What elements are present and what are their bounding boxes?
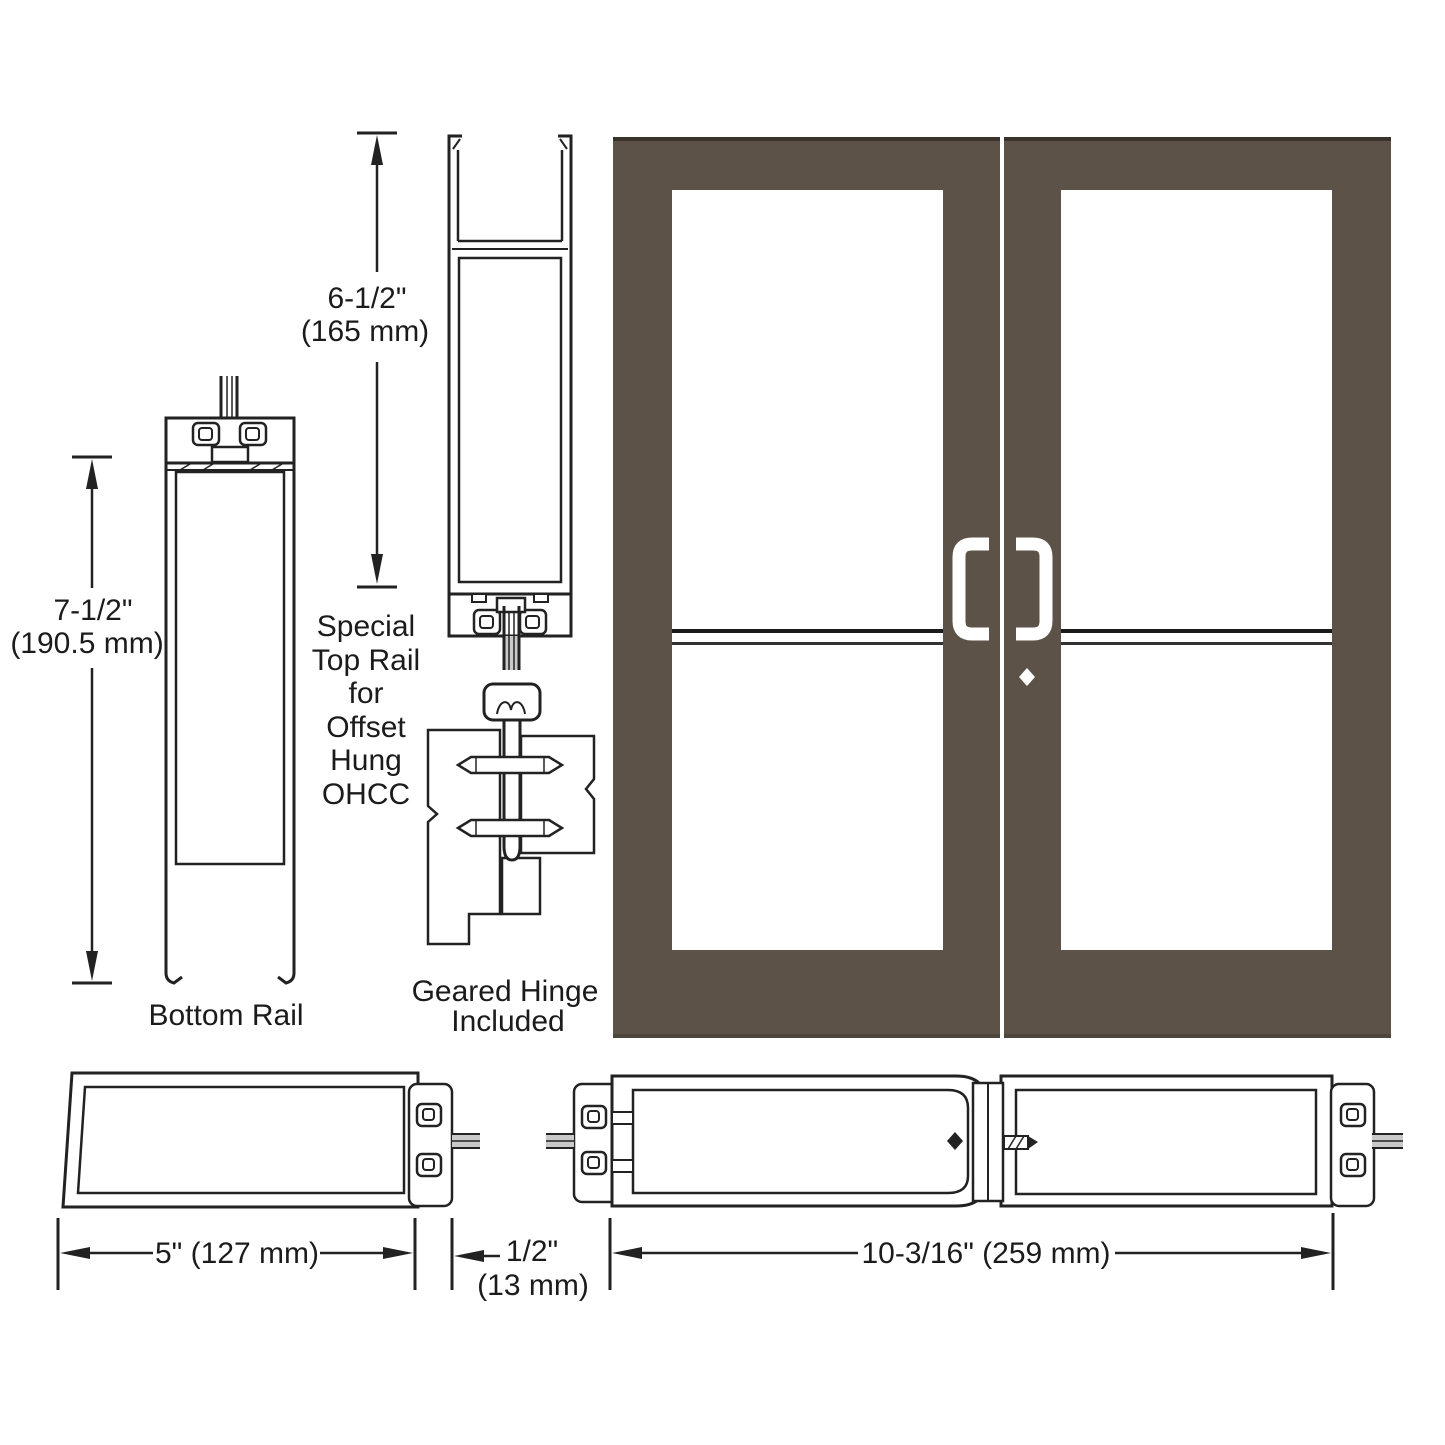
hinge-pin	[458, 820, 562, 836]
label-special-top-rail-line4: Offset	[326, 711, 405, 744]
label-special-top-rail-line5: Hung	[330, 744, 402, 777]
arrowhead-right	[383, 1247, 413, 1259]
line-art-layer	[0, 0, 1445, 1445]
top-rail-height-dimension	[357, 133, 397, 587]
arrowhead-right	[1301, 1247, 1331, 1259]
label-special-top-rail-line2: Top Rail	[312, 644, 420, 677]
stile-section-5in	[63, 1073, 480, 1207]
hinge-cap	[484, 684, 540, 720]
dim-bottom-rail-inches: 7-1/2"	[53, 594, 132, 627]
left-door-glass	[672, 190, 943, 950]
geared-hinge-detail	[428, 684, 594, 944]
arrowhead-down	[371, 554, 383, 584]
dim-bottom-rail-mm: (190.5 mm)	[10, 627, 163, 660]
dim-top-rail-inches: 6-1/2"	[327, 282, 406, 315]
dim-pair-stile-width: 10-3/16" (259 mm)	[861, 1237, 1110, 1270]
dim-top-rail-mm: (165 mm)	[301, 315, 429, 348]
label-geared-hinge-line1: Geared Hinge	[412, 975, 599, 1008]
hinge-pin	[458, 757, 562, 773]
label-geared-hinge-line2: Included	[451, 1005, 564, 1038]
label-special-top-rail-line3: for	[348, 677, 383, 710]
pair-stile-section-10in	[546, 1076, 1403, 1206]
screw	[1004, 1136, 1028, 1149]
dim-gap-inches: 1/2"	[506, 1235, 558, 1268]
label-special-top-rail-line6: OHCC	[322, 778, 410, 811]
arrowhead-left	[60, 1247, 90, 1259]
dim-stile-width: 5" (127 mm)	[155, 1237, 319, 1270]
top-rail-profile-drawing	[449, 136, 571, 670]
arrowhead-down	[86, 951, 98, 981]
dim-gap-mm: (13 mm)	[477, 1269, 589, 1302]
right-door-mid-rail	[1061, 629, 1332, 633]
left-door-mid-rail	[672, 629, 943, 633]
arrowhead-left	[454, 1250, 484, 1262]
hinge-barrel	[504, 712, 520, 860]
label-bottom-rail: Bottom Rail	[148, 999, 303, 1032]
arrowhead-left	[612, 1247, 642, 1259]
bottom-rail-profile-drawing	[166, 376, 294, 983]
glass-clamp	[212, 447, 248, 462]
pivot-hardware	[409, 1084, 452, 1206]
double-door-elevation	[613, 137, 1391, 1038]
label-special-top-rail-line1: Special	[317, 610, 415, 643]
pivot-hardware	[1331, 1084, 1374, 1206]
bottom-rail-height-dimension	[72, 457, 112, 983]
spec-drawing-canvas: 6-1/2" (165 mm) 7-1/2" (190.5 mm) Specia…	[0, 0, 1445, 1445]
right-door-glass	[1061, 190, 1332, 950]
glass-clamp	[497, 598, 525, 612]
